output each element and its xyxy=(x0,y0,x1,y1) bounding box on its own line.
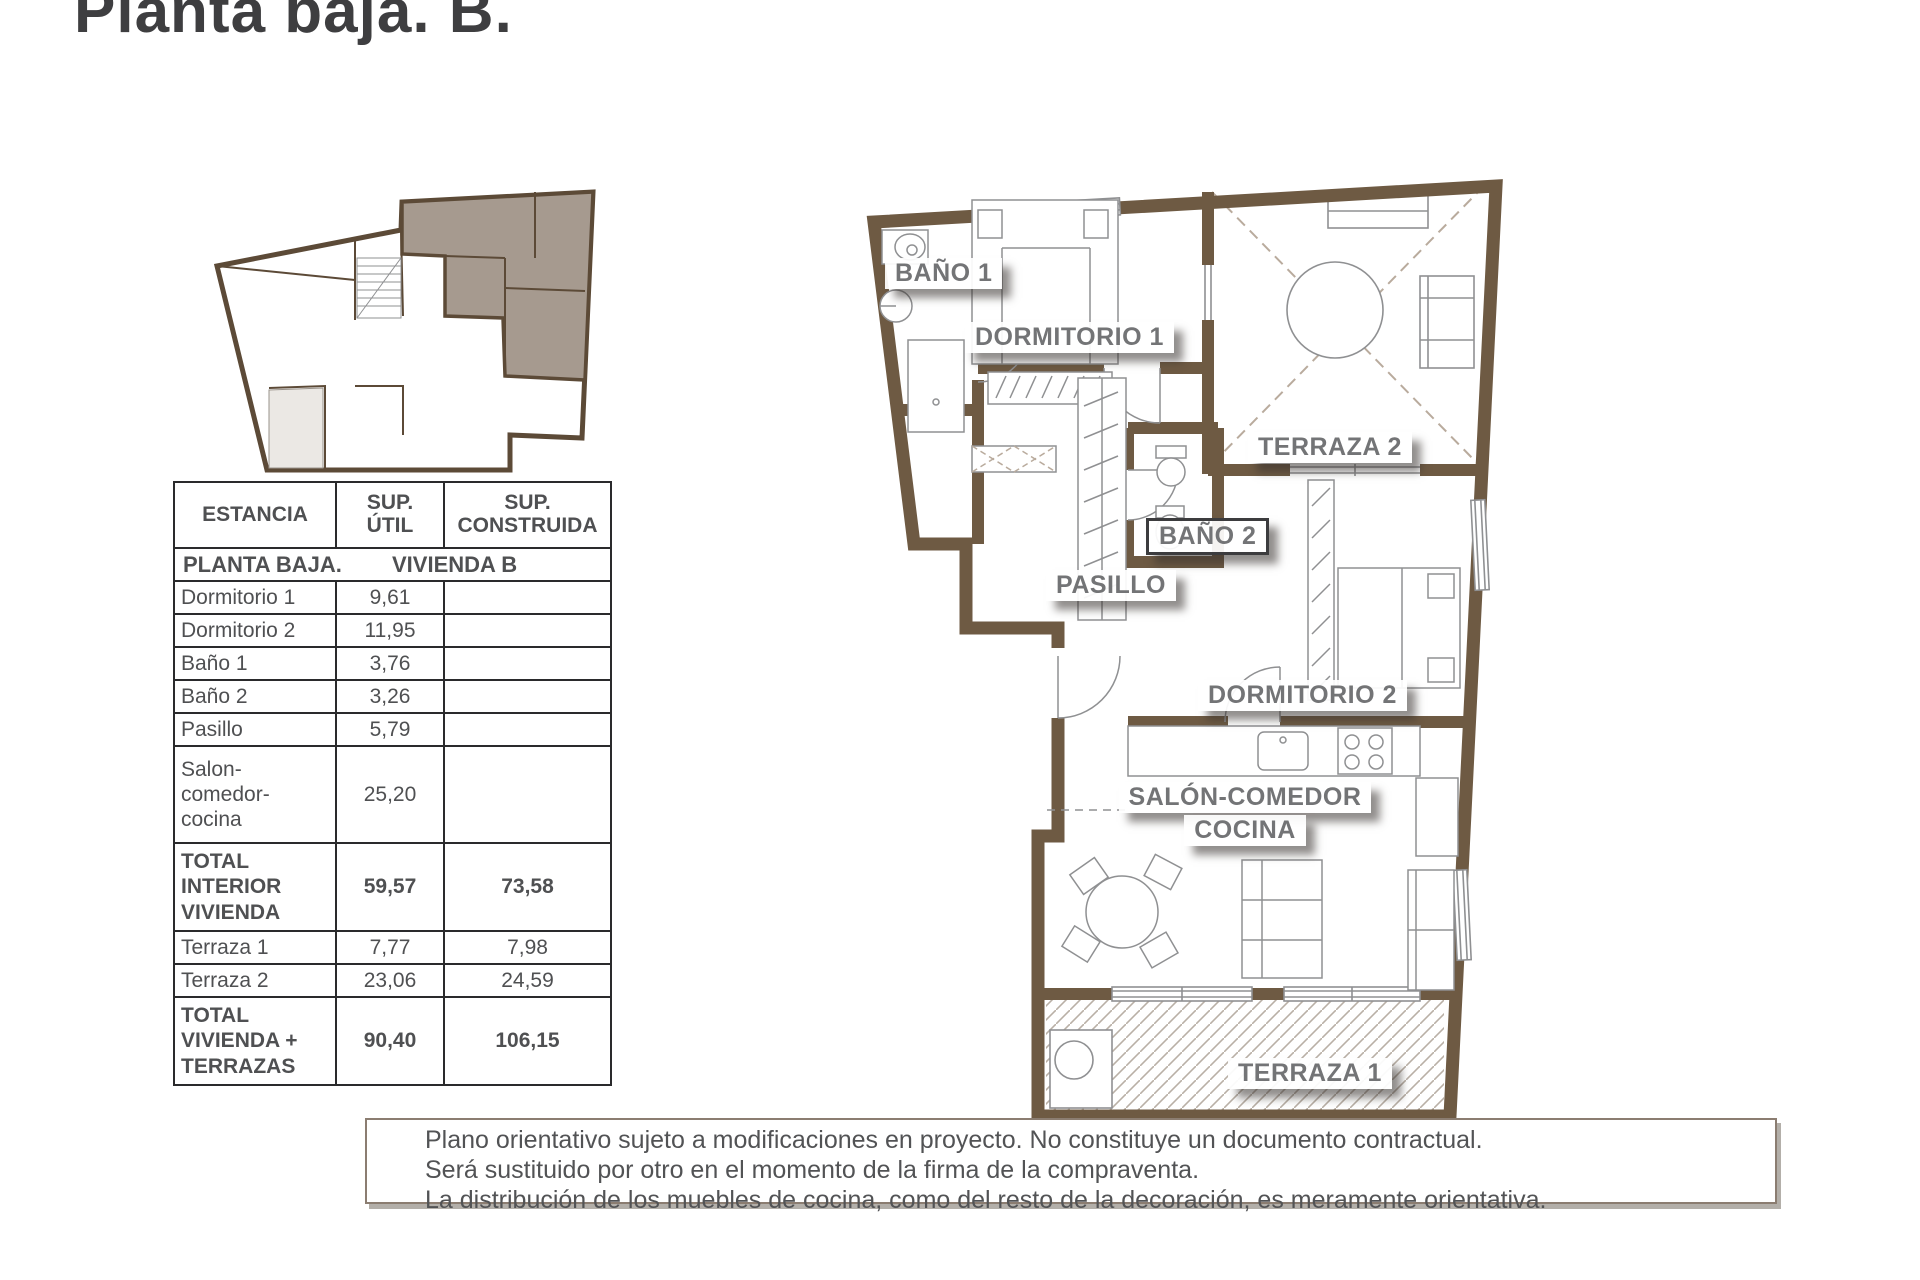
section-vivienda-b: VIVIENDA B xyxy=(392,552,517,578)
header-sup-util: SUP. ÚTIL xyxy=(336,482,444,548)
table-header-row: ESTANCIA SUP. ÚTIL SUP. CONSTRUIDA xyxy=(174,482,611,548)
row-sup-construida xyxy=(444,581,611,614)
room-label-salon: SALÓN-COMEDOR COCINA xyxy=(1100,782,1390,846)
row-sup-util: 7,77 xyxy=(336,931,444,964)
row-sup-util: 90,40 xyxy=(336,997,444,1085)
main-floor-plan xyxy=(860,170,1780,1140)
room-label-salon-line2: COCINA xyxy=(1184,815,1306,846)
row-sup-construida xyxy=(444,746,611,843)
disclaimer-line-3: La distribución de los muebles de cocina… xyxy=(425,1185,1765,1215)
row-sup-util: 23,06 xyxy=(336,964,444,997)
header-estancia: ESTANCIA xyxy=(174,482,336,548)
room-label-bano2: BAÑO 2 xyxy=(1146,518,1269,555)
row-sup-util: 11,95 xyxy=(336,614,444,647)
row-name: TOTAL INTERIOR VIVIENDA xyxy=(174,843,336,931)
room-label-bano1: BAÑO 1 xyxy=(885,258,1002,289)
table-row: Pasillo5,79 xyxy=(174,713,611,746)
row-sup-util: 3,26 xyxy=(336,680,444,713)
room-label-salon-line1: SALÓN-COMEDOR xyxy=(1119,782,1372,813)
row-sup-util: 59,57 xyxy=(336,843,444,931)
row-sup-construida: 24,59 xyxy=(444,964,611,997)
table-row: Baño 23,26 xyxy=(174,680,611,713)
room-label-terraza1: TERRAZA 1 xyxy=(1228,1058,1392,1089)
row-name: Baño 1 xyxy=(174,647,336,680)
areas-table: ESTANCIA SUP. ÚTIL SUP. CONSTRUIDA PLANT… xyxy=(173,481,612,1086)
row-sup-construida xyxy=(444,614,611,647)
row-sup-construida xyxy=(444,713,611,746)
mini-plan-stairs xyxy=(357,258,401,318)
table-row: Baño 13,76 xyxy=(174,647,611,680)
room-label-dormitorio1: DORMITORIO 1 xyxy=(965,322,1174,353)
table-row: Dormitorio 211,95 xyxy=(174,614,611,647)
row-sup-util: 25,20 xyxy=(336,746,444,843)
row-sup-construida xyxy=(444,680,611,713)
table-row: TOTAL INTERIOR VIVIENDA59,5773,58 xyxy=(174,843,611,931)
row-sup-construida: 7,98 xyxy=(444,931,611,964)
mini-key-plan xyxy=(205,138,605,483)
row-sup-construida: 73,58 xyxy=(444,843,611,931)
row-name: Terraza 2 xyxy=(174,964,336,997)
row-name: Dormitorio 1 xyxy=(174,581,336,614)
table-section-row: PLANTA BAJA. VIVIENDA B xyxy=(174,548,611,581)
row-name: Pasillo xyxy=(174,713,336,746)
table-row: Terraza 17,777,98 xyxy=(174,931,611,964)
row-name: TOTAL VIVIENDA + TERRAZAS xyxy=(174,997,336,1085)
row-name: Baño 2 xyxy=(174,680,336,713)
row-name: Terraza 1 xyxy=(174,931,336,964)
table-row: TOTAL VIVIENDA + TERRAZAS90,40106,15 xyxy=(174,997,611,1085)
section-planta-baja: PLANTA BAJA. xyxy=(181,552,342,577)
disclaimer-line-2: Será sustituido por otro en el momento d… xyxy=(425,1155,1765,1185)
room-label-dormitorio2: DORMITORIO 2 xyxy=(1198,680,1407,711)
row-sup-util: 5,79 xyxy=(336,713,444,746)
header-sup-construida: SUP. CONSTRUIDA xyxy=(444,482,611,548)
row-sup-util: 3,76 xyxy=(336,647,444,680)
table-row: Salon- comedor- cocina25,20 xyxy=(174,746,611,843)
disclaimer-line-1: Plano orientativo sujeto a modificacione… xyxy=(425,1125,1765,1155)
room-label-pasillo: PASILLO xyxy=(1046,570,1176,601)
table-row: Terraza 223,0624,59 xyxy=(174,964,611,997)
terraza1-utility xyxy=(1050,1030,1112,1108)
page-title: Planta baja. B. xyxy=(74,0,513,47)
disclaimer-box: Plano orientativo sujeto a modificacione… xyxy=(365,1118,1777,1204)
row-name: Dormitorio 2 xyxy=(174,614,336,647)
row-sup-construida xyxy=(444,647,611,680)
row-name: Salon- comedor- cocina xyxy=(174,746,336,843)
row-sup-construida: 106,15 xyxy=(444,997,611,1085)
row-sup-util: 9,61 xyxy=(336,581,444,614)
section-cell: PLANTA BAJA. VIVIENDA B xyxy=(174,548,611,581)
table-row: Dormitorio 19,61 xyxy=(174,581,611,614)
room-label-terraza2: TERRAZA 2 xyxy=(1248,432,1412,463)
mini-plan-building xyxy=(217,192,593,470)
